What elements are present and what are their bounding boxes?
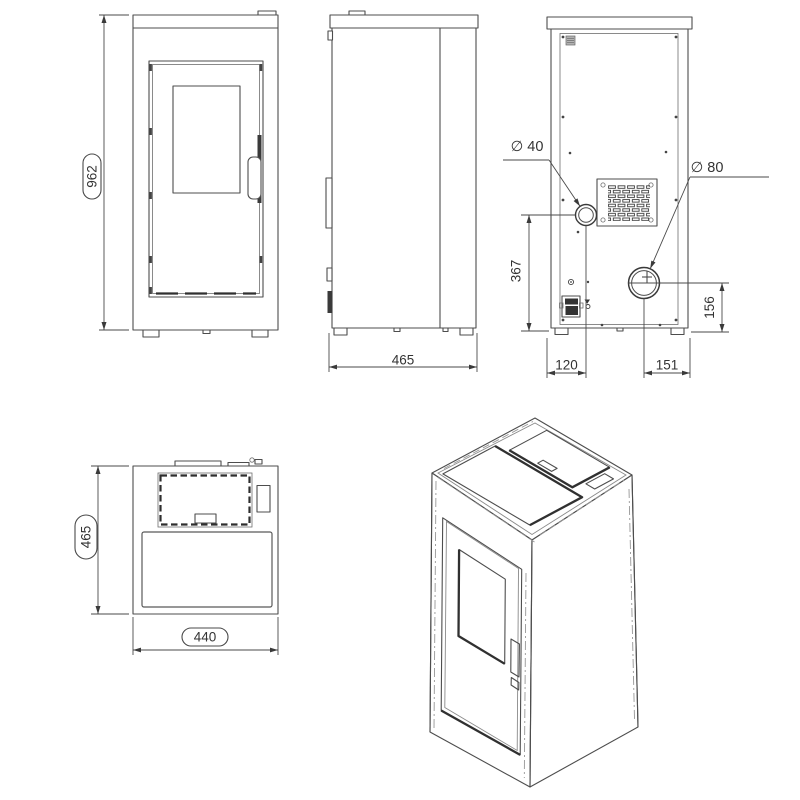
front-height-dimension: 962	[83, 15, 129, 330]
front-foot-left	[143, 330, 159, 337]
side-body	[332, 28, 476, 328]
technical-drawing: 962 465	[0, 0, 800, 800]
side-view: 465	[326, 11, 478, 372]
top-front-panel	[142, 532, 272, 607]
top-width-dimension: 440	[133, 617, 278, 655]
rear-flue-outlet	[629, 268, 660, 299]
air-height-label: 367	[509, 260, 524, 283]
air-diameter-label: ∅ 40	[511, 139, 544, 155]
top-knob-tab	[255, 460, 262, 465]
front-top-tab	[258, 11, 276, 15]
front-height-label: 962	[85, 165, 100, 188]
side-depth-dimension: 465	[329, 333, 477, 372]
grille-slots	[608, 185, 650, 221]
top-depth-label: 465	[79, 526, 94, 549]
flue-height-label: 156	[702, 296, 717, 319]
top-width-label: 440	[194, 630, 217, 645]
side-depth-label: 465	[392, 353, 415, 368]
side-foot-front	[334, 328, 347, 335]
top-view: 465 440	[75, 458, 278, 655]
top-depth-dimension: 465	[75, 466, 129, 614]
front-view: 962	[83, 11, 278, 337]
top-knob	[250, 458, 254, 462]
rear-top-band	[547, 17, 692, 29]
flue-offset-label: 151	[656, 358, 679, 373]
flue-diameter-label: ∅ 80	[691, 160, 724, 176]
front-foot-right	[252, 330, 268, 337]
rear-rating-sticker	[566, 36, 575, 45]
front-door	[149, 61, 263, 297]
rear-view: ∅ 40 ∅ 80 367 156	[503, 17, 769, 378]
side-foot-back	[460, 328, 473, 335]
side-top-tab	[349, 11, 365, 15]
front-center-notch	[203, 330, 210, 334]
rear-center-notch	[617, 328, 623, 331]
front-door-handle	[248, 157, 261, 199]
side-bottom-notch	[394, 328, 400, 332]
drawing-canvas: 962 465	[0, 0, 800, 800]
air-offset-label: 120	[555, 358, 578, 373]
isometric-view	[430, 418, 638, 787]
side-bottom-notch2	[443, 328, 448, 332]
side-top-band	[330, 15, 478, 28]
rear-foot-left	[555, 328, 568, 335]
rear-foot-right	[671, 328, 684, 335]
rear-air-intake	[576, 205, 597, 226]
